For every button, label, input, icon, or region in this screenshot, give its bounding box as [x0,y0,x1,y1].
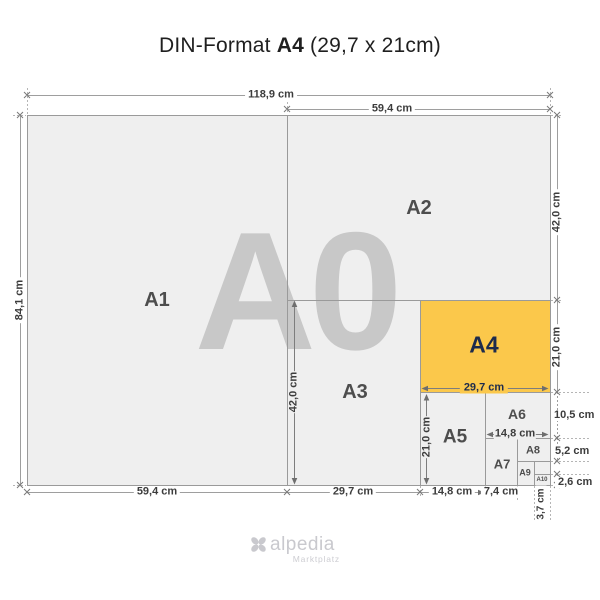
dim-a7-width: 7,4 cm [481,487,521,498]
logo-name: alpedia [270,535,335,554]
dim-a6-height: 10,5 cm [551,410,597,421]
label-a1: A1 [144,290,170,310]
title-prefix: DIN-Format [159,34,277,57]
label-a9: A9 [519,469,531,478]
dim-a2-height: 42,0 cm [552,189,563,235]
dim-a10-width: 3,7 cm [536,485,547,522]
label-a3: A3 [342,382,368,402]
dimension-end-crosses [17,92,560,495]
dim-a3-width: 29,7 cm [330,487,376,498]
dim-a10-height: 2,6 cm [555,477,595,488]
title-size: (29,7 x 21cm) [304,34,441,57]
dimension-lines-layer [0,0,600,600]
dim-a5-width: 14,8 cm [429,487,475,498]
page-title: DIN-Format A4 (29,7 x 21cm) [0,34,600,58]
label-a2: A2 [406,198,432,218]
label-a10: A10 [536,477,547,483]
dim-a0-height: 84,1 cm [15,277,26,323]
dim-inner-a3-height: 42,0 cm [288,371,299,413]
dim-inner-a6-width: 14,8 cm [494,429,536,440]
dim-inner-a5-height: 21,0 cm [422,416,433,458]
title-format: A4 [277,34,304,57]
label-a4: A4 [469,334,498,357]
dim-a2-width: 59,4 cm [369,104,415,115]
dim-a1-width: 59,4 cm [134,487,180,498]
din-format-diagram: DIN-Format A4 (29,7 x 21cm) A0 [0,0,600,600]
dim-inner-a4-width: 29,7 cm [460,383,508,394]
label-a5: A5 [443,428,467,447]
dim-a0-width: 118,9 cm [245,90,297,101]
dimension-lines [21,96,558,493]
label-a7: A7 [494,458,511,471]
logo-tagline: Marktplatz [270,555,340,564]
label-a6: A6 [508,407,526,421]
clover-icon [249,535,268,554]
dim-a4-height: 21,0 cm [552,324,563,370]
label-a8: A8 [526,446,540,457]
dim-a8-height: 5,2 cm [552,446,592,457]
